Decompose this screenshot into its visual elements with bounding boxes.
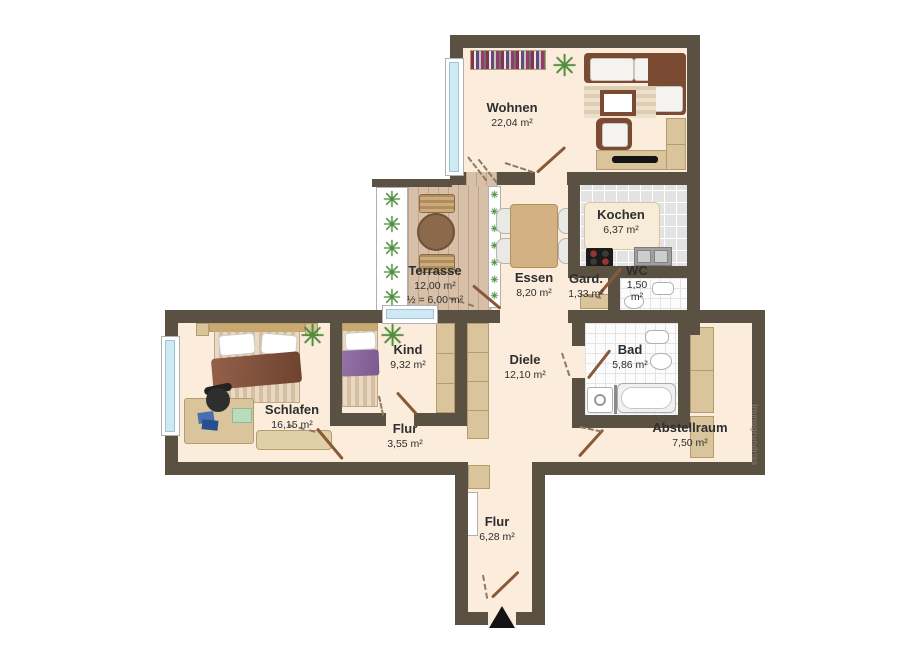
room-area: 5,86 m² bbox=[585, 359, 675, 373]
watermark-text: Immogrundriss bbox=[750, 404, 760, 465]
sofa-cushion bbox=[654, 86, 683, 112]
window-glass bbox=[449, 62, 459, 172]
wall-segment bbox=[572, 310, 585, 346]
wall-segment bbox=[532, 462, 765, 475]
plant-icon: ✳ bbox=[383, 189, 401, 211]
room-label-gard: Gard. 1,33 m² bbox=[558, 271, 614, 302]
room-label-diele: Diele 12,10 m² bbox=[480, 352, 570, 383]
wardrobe-divider bbox=[467, 410, 489, 411]
room-area: 1,50 m² bbox=[621, 279, 653, 303]
room-name: Bad bbox=[585, 342, 675, 359]
room-label-flur-eingang: Flur 6,28 m² bbox=[452, 514, 542, 545]
room-area: 3,55 m² bbox=[360, 438, 450, 452]
plant-icon: ✳ bbox=[490, 191, 498, 201]
wall-segment bbox=[572, 378, 585, 415]
wall-segment bbox=[678, 323, 690, 415]
window-glass bbox=[165, 340, 175, 432]
tv-icon bbox=[612, 156, 658, 163]
room-area: 6,28 m² bbox=[452, 531, 542, 545]
room-name: Kochen bbox=[576, 207, 666, 224]
room-label-flur: Flur 3,55 m² bbox=[360, 421, 450, 452]
room-name: Schlafen bbox=[247, 402, 337, 419]
room-name: Gard. bbox=[558, 271, 614, 288]
bookshelf bbox=[470, 50, 546, 70]
wall-segment bbox=[516, 612, 545, 625]
room-name: Abstellraum bbox=[635, 420, 745, 437]
nightstand bbox=[196, 323, 209, 336]
closet-divider bbox=[436, 383, 455, 384]
dining-table bbox=[510, 204, 558, 268]
room-area: 16,15 m² bbox=[247, 419, 337, 433]
entry-cabinet bbox=[468, 465, 490, 489]
wall-segment bbox=[455, 323, 467, 413]
plant-icon: ✳ bbox=[383, 238, 401, 260]
room-name: Wohnen bbox=[462, 100, 562, 117]
wall-segment bbox=[567, 172, 700, 185]
terrace-chair bbox=[419, 194, 455, 213]
room-name: Terrasse bbox=[390, 263, 480, 280]
plant-icon: ✳ bbox=[552, 52, 577, 82]
room-label-wc: WC 1,50 m² bbox=[621, 264, 653, 303]
armchair-cushion bbox=[602, 123, 628, 147]
room-area: 22,04 m² bbox=[462, 117, 562, 131]
sofa-cushion bbox=[590, 58, 634, 81]
entrance-arrow-icon bbox=[489, 606, 515, 628]
sink-basin bbox=[654, 250, 668, 263]
bed-pillow bbox=[218, 332, 256, 356]
room-area-half: ½ = 6,00 m² bbox=[390, 294, 480, 308]
room-area: 12,10 m² bbox=[480, 369, 570, 383]
room-label-kochen: Kochen 6,37 m² bbox=[576, 207, 666, 238]
bathtub-basin bbox=[621, 387, 672, 409]
room-label-terrasse: Terrasse 12,00 m² ½ = 6,00 m² bbox=[390, 263, 480, 307]
office-chair-seat bbox=[206, 388, 230, 412]
stove-icon bbox=[586, 248, 613, 267]
room-area: 1,33 m² bbox=[558, 288, 614, 302]
wall-segment bbox=[568, 310, 765, 323]
wall-segment bbox=[372, 179, 452, 187]
washing-machine-door bbox=[594, 394, 606, 406]
cabinet-divider bbox=[690, 370, 714, 371]
plant-icon: ✳ bbox=[300, 322, 325, 352]
floor-plan: ✳ ✳ ✳ ✳ ✳ ✳ ✳ ✳ ✳ ✳ ✳ ✳ ✳ bbox=[0, 0, 920, 651]
wall-segment bbox=[165, 462, 468, 475]
room-name: Kind bbox=[363, 342, 453, 359]
desk-papers bbox=[202, 419, 219, 431]
plant-icon: ✳ bbox=[383, 214, 401, 236]
sink-basin bbox=[637, 250, 651, 263]
wall-segment bbox=[455, 612, 488, 625]
terrace-table bbox=[417, 213, 455, 251]
wall-segment bbox=[687, 35, 700, 335]
room-name: Diele bbox=[480, 352, 570, 369]
room-label-wohnen: Wohnen 22,04 m² bbox=[462, 100, 562, 131]
room-area: 6,37 m² bbox=[576, 224, 666, 238]
window-glass bbox=[386, 309, 434, 319]
wc-sink bbox=[652, 282, 674, 295]
room-label-kind: Kind 9,32 m² bbox=[363, 342, 453, 373]
room-area: 7,50 m² bbox=[635, 437, 745, 451]
room-name: Flur bbox=[452, 514, 542, 531]
room-label-bad: Bad 5,86 m² bbox=[585, 342, 675, 373]
wall-segment bbox=[497, 172, 535, 185]
room-area: 9,32 m² bbox=[363, 359, 453, 373]
room-name: WC bbox=[621, 264, 653, 279]
room-label-schlafen: Schlafen 16,15 m² bbox=[247, 402, 337, 433]
room-name: Flur bbox=[360, 421, 450, 438]
wall-segment bbox=[450, 35, 700, 48]
room-area: 12,00 m² bbox=[390, 280, 480, 294]
coffee-table bbox=[600, 90, 636, 116]
cabinet-divider bbox=[666, 144, 686, 145]
room-label-abstellraum: Abstellraum 7,50 m² bbox=[635, 420, 745, 451]
